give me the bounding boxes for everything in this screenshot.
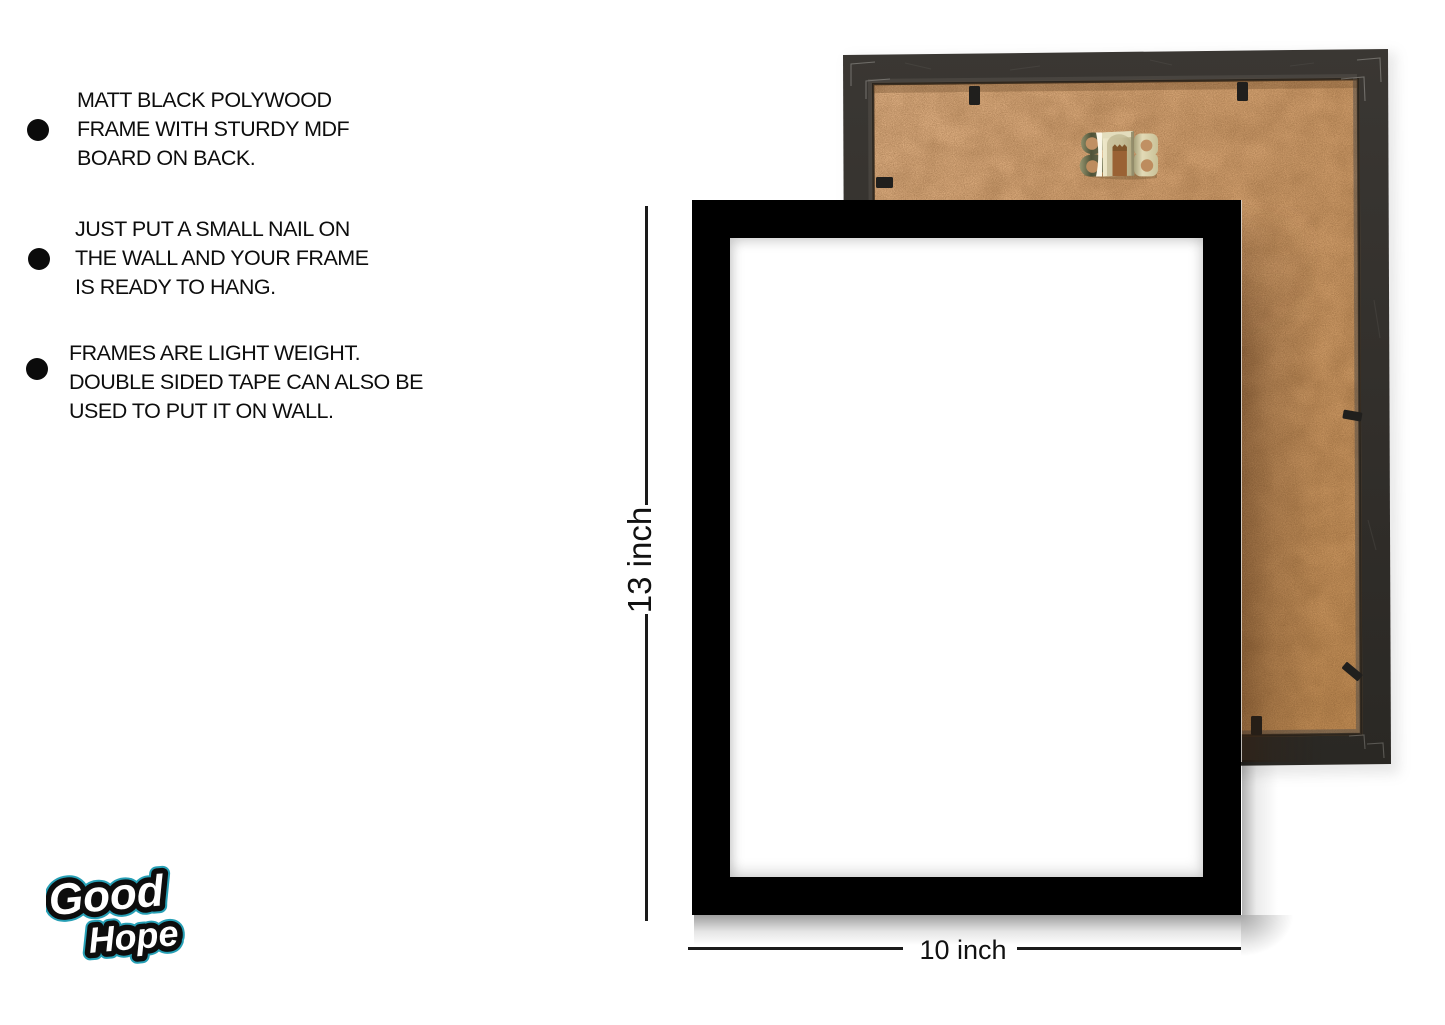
- svg-text:Hope: Hope: [87, 912, 180, 961]
